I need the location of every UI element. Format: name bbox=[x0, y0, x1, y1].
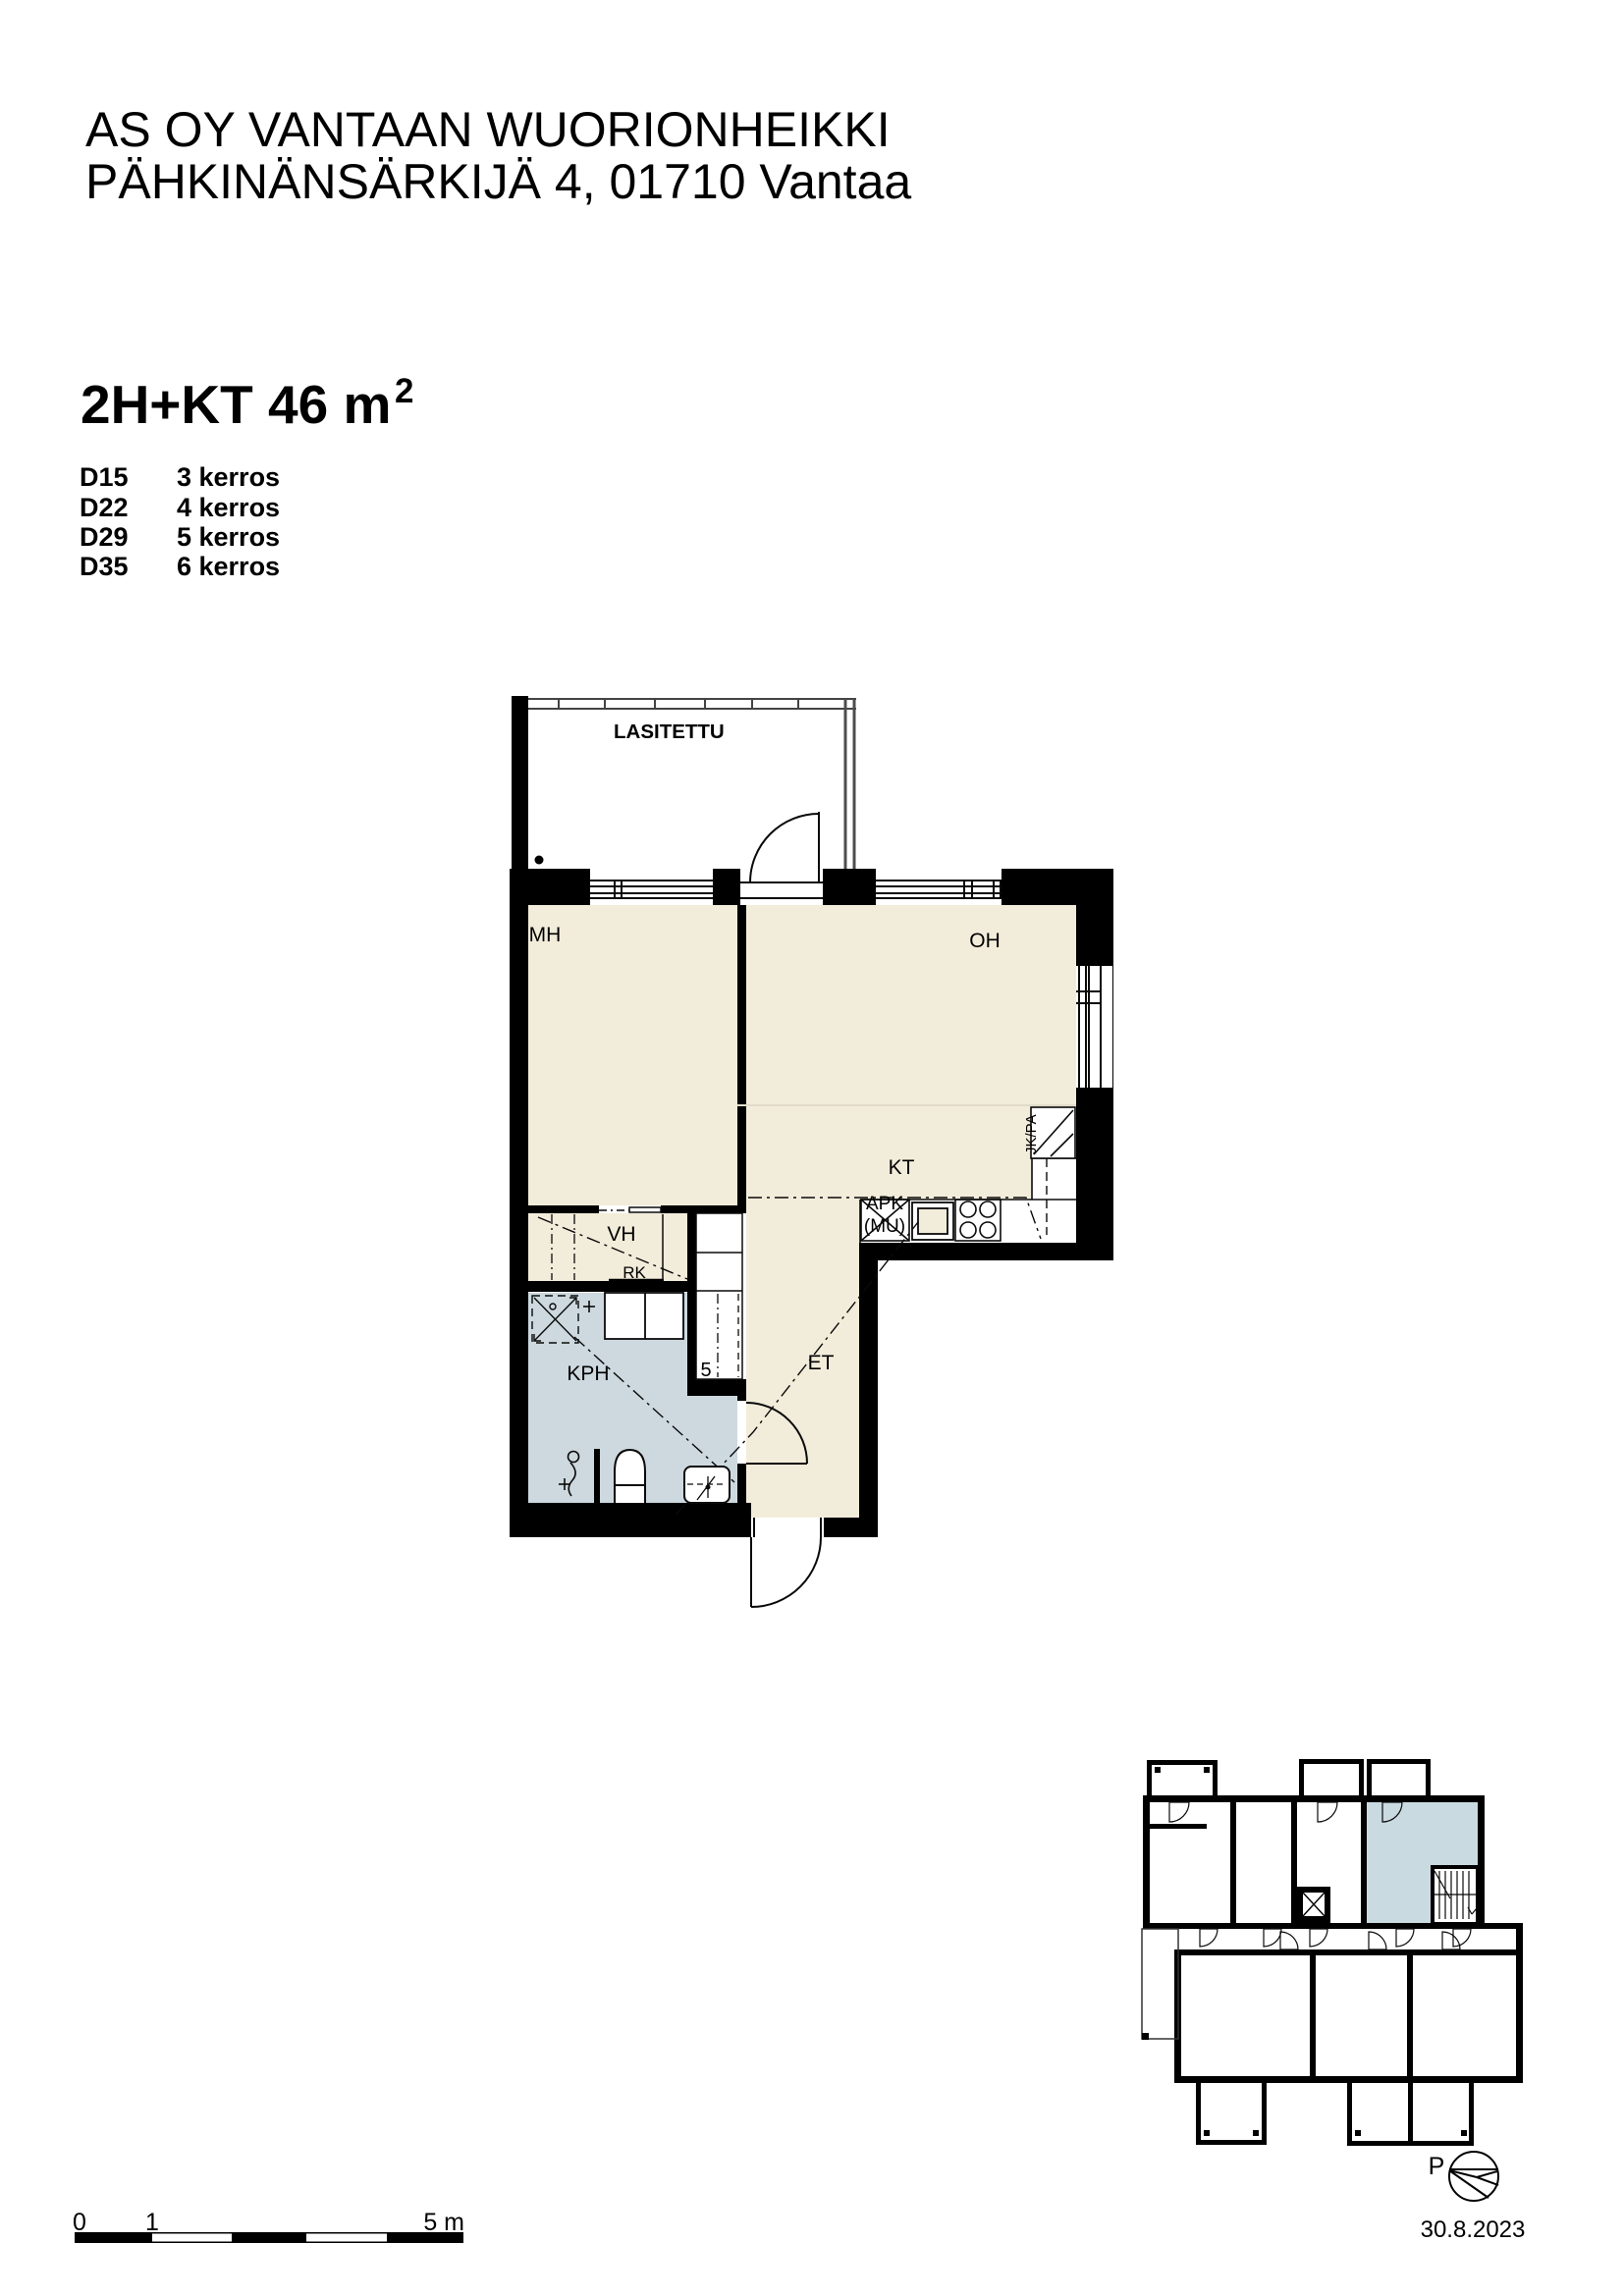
svg-text:JK/PA: JK/PA bbox=[1023, 1114, 1040, 1154]
svg-text:1: 1 bbox=[145, 2209, 159, 2236]
svg-text:KT: KT bbox=[889, 1156, 915, 1179]
svg-text:D29: D29 bbox=[80, 522, 129, 552]
svg-text:2H+KT 46 m: 2H+KT 46 m bbox=[81, 374, 391, 435]
svg-text:OH: OH bbox=[969, 930, 1001, 952]
svg-text:LASITETTU: LASITETTU bbox=[614, 721, 725, 743]
svg-text:D22: D22 bbox=[80, 493, 129, 522]
svg-text:0: 0 bbox=[73, 2209, 86, 2236]
svg-text:5: 5 bbox=[700, 1360, 711, 1381]
svg-text:4 kerros: 4 kerros bbox=[177, 493, 280, 522]
svg-text:ET: ET bbox=[808, 1352, 835, 1374]
svg-text:PÄHKINÄNSÄRKIJÄ 4, 01710 Vanta: PÄHKINÄNSÄRKIJÄ 4, 01710 Vantaa bbox=[85, 154, 911, 209]
svg-text:5 kerros: 5 kerros bbox=[177, 522, 280, 552]
svg-text:MH: MH bbox=[529, 924, 562, 946]
svg-text:D15: D15 bbox=[80, 462, 129, 492]
svg-text:KPH: KPH bbox=[567, 1362, 609, 1385]
svg-text:APK: APK bbox=[866, 1194, 903, 1214]
svg-text:5 m: 5 m bbox=[423, 2209, 464, 2236]
svg-text:3 kerros: 3 kerros bbox=[177, 462, 280, 492]
svg-text:P: P bbox=[1429, 2153, 1445, 2180]
svg-text:2: 2 bbox=[395, 372, 413, 410]
svg-text:(MU): (MU) bbox=[864, 1216, 905, 1237]
svg-text:6 kerros: 6 kerros bbox=[177, 552, 280, 581]
svg-text:AS OY VANTAAN WUORIONHEIKKI: AS OY VANTAAN WUORIONHEIKKI bbox=[85, 102, 891, 157]
svg-text:VH: VH bbox=[607, 1223, 635, 1246]
svg-text:30.8.2023: 30.8.2023 bbox=[1421, 2216, 1526, 2243]
svg-text:D35: D35 bbox=[80, 552, 129, 581]
